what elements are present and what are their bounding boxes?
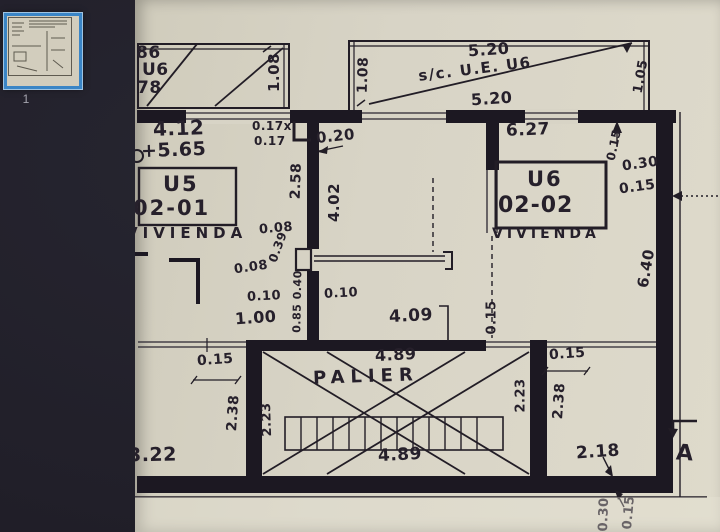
dim-unit-left-depth: 2.58: [289, 162, 304, 199]
dim-center-e: 1.00: [234, 309, 276, 328]
dim-hall-depth: 4.02: [327, 183, 342, 222]
label-section-marker: A: [675, 442, 694, 465]
dim-center-g: 0.10: [324, 286, 359, 301]
dim-palier-top: 4.89: [375, 346, 417, 364]
dim-bottom-left-width: 3.22: [135, 446, 177, 466]
viewer-window: 1: [0, 0, 720, 532]
dim-center-width: 4.09: [389, 307, 434, 326]
dim-balcony-left-height: 1.08: [267, 53, 282, 92]
dim-balcony-right-height: 1.08: [356, 56, 371, 93]
dim-center-wall: 0.15: [486, 300, 499, 334]
dim-bottom-right-wall: 0.15: [549, 346, 586, 363]
thumbnail-preview-image: [7, 16, 73, 80]
dim-center-d: 0.10: [247, 289, 282, 304]
dim-wall-017: 0.17: [254, 135, 286, 147]
dim-palier-bottom: 4.89: [378, 446, 423, 465]
label-balcony-left-unit: U6: [142, 62, 169, 79]
dim-balcony-left-2: 78: [137, 80, 162, 97]
paper-lower-margin: [135, 497, 720, 532]
dim-bottom-right-depth: 2.38: [551, 382, 568, 419]
dim-bottom-left-depth: 2.38: [225, 394, 242, 431]
dim-hall-wall: 0.20: [315, 127, 355, 146]
dim-center-f: 0.85 0.40: [291, 270, 303, 333]
label-unit-right-number: 02-02: [498, 195, 573, 217]
dim-palier-right: 2.23: [515, 378, 528, 412]
dim-unit-left-width: 4.12: [153, 117, 205, 139]
document-page: 86 U6 78 1.08 5.20 s/c. U.E. U6 5.20 1.0…: [135, 0, 720, 532]
label-unit-right-code: U6: [527, 169, 563, 190]
page-number-label: 1: [16, 92, 36, 106]
label-palier: PALIER: [313, 366, 419, 388]
dim-wall-017x: 0.17x: [252, 120, 292, 132]
dim-palier-left: 2.23: [260, 402, 274, 437]
thumbnail-panel: 1: [0, 0, 110, 140]
label-unit-left-number: 02-01: [135, 198, 210, 219]
page-thumbnail[interactable]: [4, 13, 82, 89]
dim-bottom-left-wall: 0.15: [197, 352, 234, 369]
label-unit-left-level: +5.65: [141, 140, 207, 161]
dim-balcony-right-bottom: 5.20: [470, 90, 512, 109]
label-unit-left-use: VIVIENDA: [135, 226, 247, 241]
label-unit-right-use: VIVIENDA: [492, 227, 600, 241]
dim-bottom-right-width: 2.18: [575, 442, 620, 462]
label-unit-left-code: U5: [163, 174, 199, 195]
dim-unit-right-width: 6.27: [506, 121, 551, 140]
